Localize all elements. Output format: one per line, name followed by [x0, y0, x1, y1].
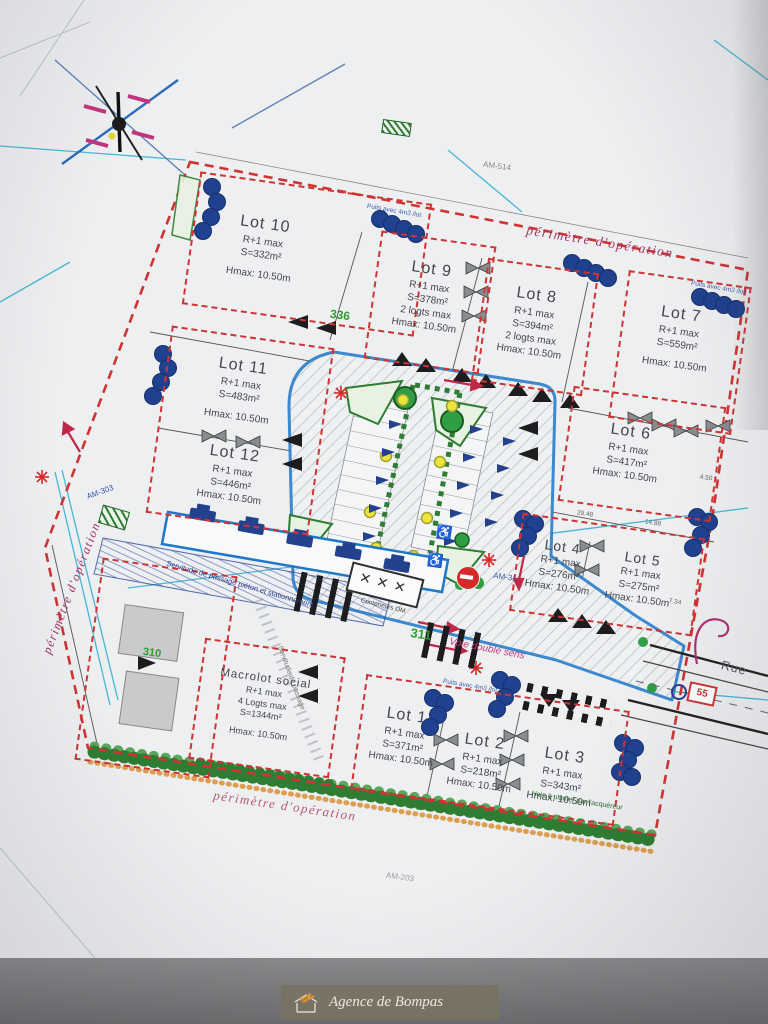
lot-2-label: Lot 2 R+1 max S=218m² Hmax: 10.50m	[446, 728, 519, 796]
wheelchair-icon: ♿	[426, 552, 444, 570]
lot-8-label: Lot 8 R+1 max S=394m² 2 logts max Hmax: …	[496, 281, 571, 362]
paper-edge-shadow	[732, 0, 768, 430]
lot-9-label: Lot 9 R+1 max S=378m² 2 logts max Hmax: …	[391, 255, 466, 336]
lot-4-label: Lot 4 R+1 max S=276m² Hmax: 10.50m	[524, 533, 596, 599]
house-icon	[291, 991, 321, 1015]
lot-5-label: Lot 5 R+1 max S=275m² Hmax: 10.50m	[604, 545, 676, 611]
parcel-number-311: 311	[410, 625, 433, 643]
lot-12-label: Lot 12 R+1 max S=446m² Hmax: 10.50m	[196, 440, 269, 508]
wheelchair-icon: ♿	[435, 524, 453, 542]
lot-6-label: Lot 6 R+1 max S=417m² Hmax: 10.50m	[592, 418, 665, 486]
lot-11-label: Lot 11 R+1 max S=483m² Hmax: 10.50m	[203, 352, 277, 427]
faint-cadastral-lines	[0, 0, 95, 958]
compass-rose-icon	[62, 80, 178, 164]
lot-1-label: Lot 1 R+1 max S=371m² Hmax: 10.50m	[368, 702, 441, 770]
parcel-number-336: 336	[329, 307, 351, 324]
existing-building	[119, 671, 180, 732]
neighbor-parcel-boundary	[74, 558, 237, 779]
agency-name: Agence de Bompas	[329, 994, 443, 1011]
lot-10-label: Lot 10 R+1 max S=332m² Hmax: 10.50m	[225, 210, 299, 285]
site-plan-photo: Lot 10 R+1 max S=332m² Hmax: 10.50m Lot …	[0, 0, 768, 1024]
lot-7-label: Lot 7 R+1 max S=559m² Hmax: 10.50m	[641, 300, 715, 375]
parcel-number-310: 310	[142, 646, 162, 660]
no-entry-sign-icon	[456, 566, 480, 590]
agency-logo: Agence de Bompas	[281, 985, 499, 1020]
